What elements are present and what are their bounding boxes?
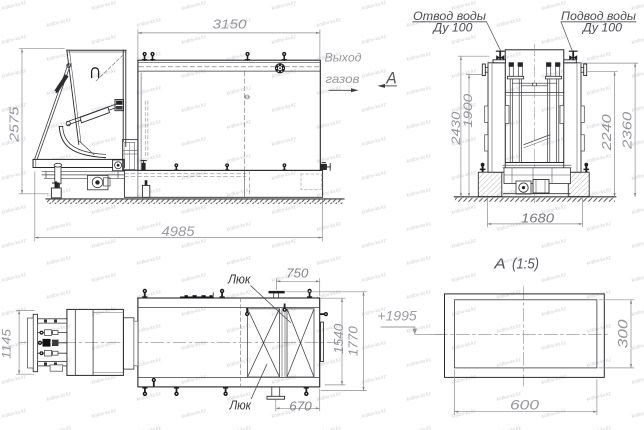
svg-text:Ду 100: Ду 100 (581, 20, 622, 34)
svg-text:300: 300 (614, 319, 630, 348)
svg-text:2575: 2575 (7, 107, 21, 143)
svg-text:А: А (385, 69, 396, 88)
svg-text:750: 750 (286, 266, 308, 280)
svg-text:1900: 1900 (461, 93, 475, 127)
svg-text:1145: 1145 (0, 329, 14, 359)
svg-text:4985: 4985 (162, 224, 196, 239)
svg-text:Ду 100: Ду 100 (431, 20, 472, 34)
svg-text:2240: 2240 (600, 114, 614, 151)
svg-text:Люк: Люк (227, 272, 251, 287)
svg-text:Выход: Выход (325, 50, 362, 64)
svg-text:(1:5): (1:5) (512, 256, 539, 273)
svg-text:газов: газов (326, 72, 360, 86)
svg-text:1680: 1680 (521, 210, 555, 225)
svg-text:600: 600 (510, 397, 539, 413)
svg-text:Люк: Люк (229, 397, 252, 412)
svg-text:670: 670 (289, 398, 312, 413)
svg-text:А: А (493, 256, 506, 273)
svg-text:+1995: +1995 (377, 308, 417, 323)
svg-text:3150: 3150 (213, 17, 247, 31)
svg-text:1770: 1770 (347, 326, 361, 356)
svg-text:1540: 1540 (332, 324, 346, 354)
svg-text:2360: 2360 (620, 112, 634, 150)
